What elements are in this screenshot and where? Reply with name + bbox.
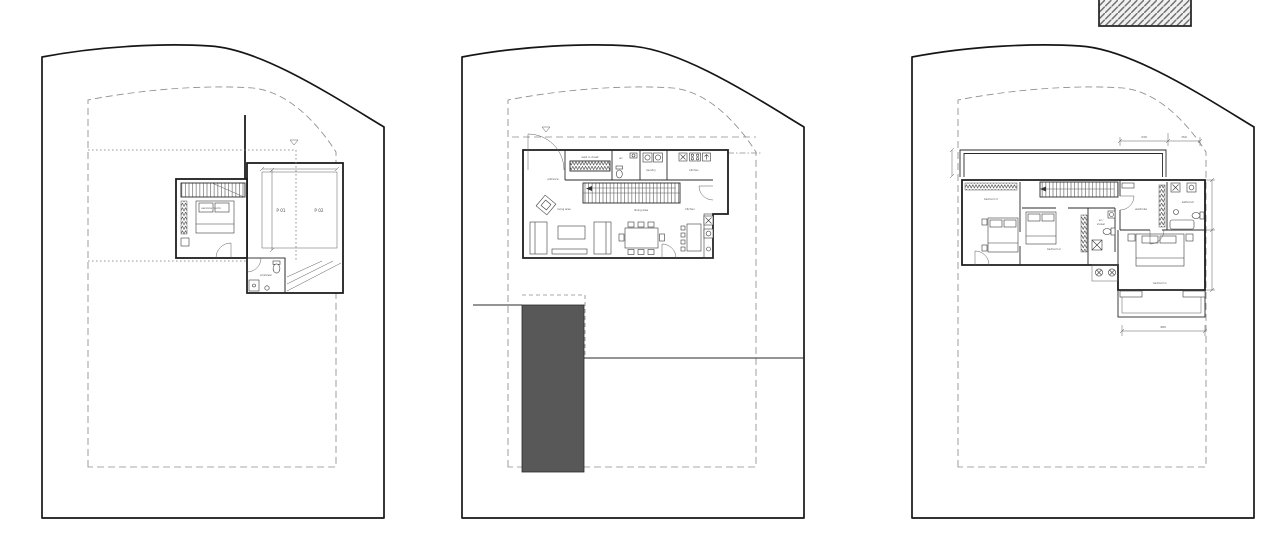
sofa-icon [594, 222, 611, 254]
toilet-icon [616, 170, 622, 178]
pool-hatched-area [522, 305, 584, 472]
room-label-walk-in-closet: walk in closet [581, 155, 598, 159]
closet-hatch [1159, 185, 1165, 227]
room-label-bedroom-2: bedroom 2 [1047, 247, 1061, 251]
room-label-wc-shower: wc/shower [260, 274, 272, 277]
room-label-laundry: laundry [646, 168, 656, 172]
architectural-drawing-sheet: service room P 01 P 02 wc [0, 0, 1280, 536]
closet-hatch [181, 201, 187, 234]
room-label-wc: wc / [1099, 219, 1104, 222]
coffee-table [558, 226, 585, 239]
stairs-icon [1040, 182, 1118, 197]
room-label-wardrobe: wardrobe [1135, 207, 1147, 211]
dimension-label: 480 [1160, 325, 1166, 329]
sink-icon [265, 286, 269, 290]
room-label-entrance: entrance [547, 177, 559, 181]
sofa-icon [530, 222, 547, 254]
washer-icon [1187, 183, 1196, 192]
room-label-living: living area [557, 207, 571, 211]
bathtub-icon [1170, 220, 1194, 229]
toilet-icon [273, 261, 280, 273]
site-plan-ground: walk in closet entrance wc laundry [462, 45, 804, 518]
nightstand [181, 238, 189, 246]
room-label-dining: dining area [634, 208, 649, 212]
dimension-right [1206, 178, 1215, 292]
outdoor-tables [1092, 265, 1118, 281]
legend-hatch-swatch [1099, 0, 1191, 26]
toilet-icon [1111, 228, 1115, 235]
room-label-kitchen: kitchen [689, 168, 699, 172]
balcony [1118, 290, 1205, 317]
toilet-icon [1200, 212, 1204, 219]
room-label-bedroom-1: bedroom 1 [1153, 281, 1167, 285]
sink-icon [1108, 211, 1115, 218]
site-plan-upper: 230 150 bedroom 3 [912, 45, 1254, 518]
floor-plans-drawing: service room P 01 P 02 wc [0, 0, 1280, 536]
stairs-icon [181, 183, 245, 197]
parking-label-p01: P 01 [276, 208, 286, 213]
dimension-top: 230 150 [1118, 133, 1202, 146]
stove-icon [690, 153, 701, 161]
dining-table [625, 228, 658, 248]
level-marker-icon [542, 127, 550, 132]
cabinet [1122, 183, 1134, 188]
site-plan-basement: service room P 01 P 02 wc [42, 45, 384, 518]
dimension-left [950, 148, 954, 178]
room-label-service-room: service room [201, 206, 221, 210]
room-label-kitchen-2: kitchen [685, 207, 695, 211]
bed-icon [1128, 234, 1193, 266]
dimension-balcony: 480 [1120, 325, 1207, 336]
tv-bench [552, 249, 587, 254]
room-label-shower: shower [1097, 223, 1105, 226]
bed-icon [1026, 212, 1056, 244]
level-marker-icon [290, 140, 298, 145]
site-boundary [462, 45, 804, 518]
closet-hatch [1081, 215, 1087, 252]
room-label-bathroom: bathroom [1182, 200, 1195, 204]
closet-hatch [965, 183, 1017, 190]
parking-label-p02: P 02 [314, 208, 324, 213]
terrace-and-pool [473, 295, 804, 472]
closet-hatch [570, 161, 610, 171]
room-label-bedroom-3: bedroom 3 [984, 197, 998, 201]
stairs-icon [583, 183, 680, 203]
dimension-label: 230 [1141, 135, 1147, 139]
roof-terrace-outline [960, 150, 1166, 177]
dimension-label: 150 [1181, 135, 1187, 139]
washer-icon [654, 153, 663, 162]
